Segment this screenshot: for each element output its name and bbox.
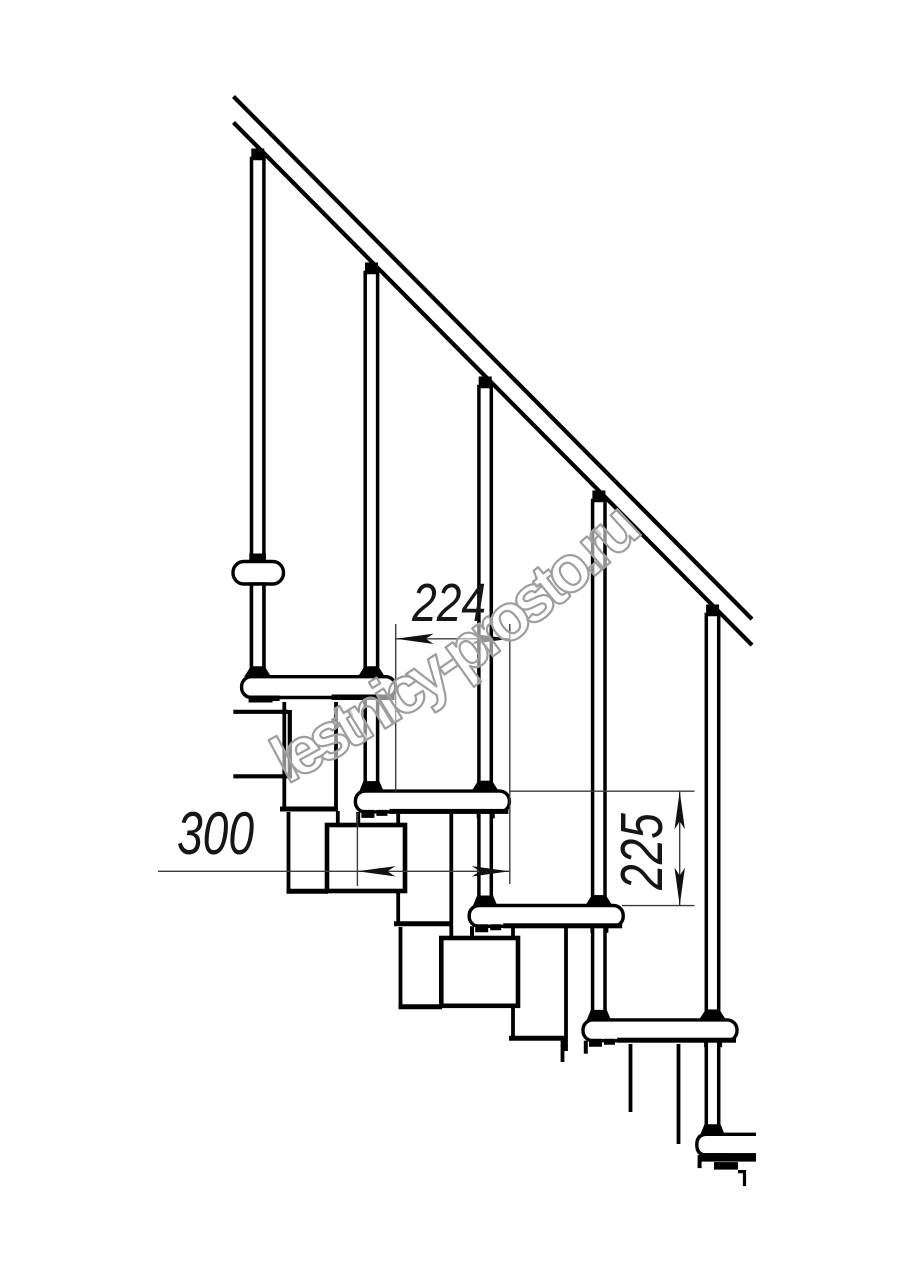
svg-text:300: 300 [177,801,254,867]
svg-text:225: 225 [610,813,676,891]
